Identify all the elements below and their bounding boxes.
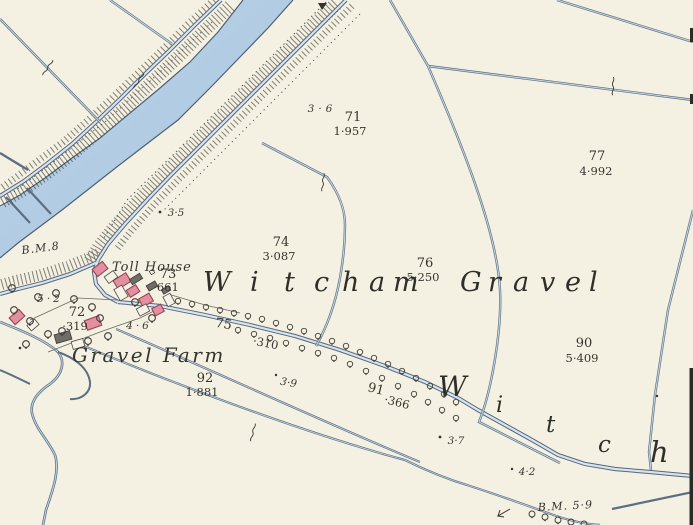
parcel-90-area: 5·409 [566,351,599,365]
svg-text:a: a [513,267,529,298]
svg-text:i: i [250,267,259,298]
svg-text:e: e [565,267,581,298]
spot-height-3-5: 3·5 [168,207,185,219]
spot-height-4-6: 4·6 [125,320,152,332]
parcel-72-area: ·319 [62,319,88,333]
svg-text:a: a [369,267,385,298]
place-name-toll-house: Toll House [112,260,192,275]
svg-text:h: h [650,435,669,469]
place-name-gravel-farm: Gravel Farm [72,343,226,367]
parcel-71-area: 1·957 [334,124,367,138]
svg-text:r: r [488,267,503,298]
svg-text:t: t [284,267,295,298]
spot-height-dot [19,347,22,350]
parcel-92-area: 1·881 [186,385,219,399]
map-canvas[interactable]: 71 1·957 77 4·992 74 3·087 73 ·661 76 5·… [0,0,693,525]
parcel-77-area: 4·992 [580,164,613,178]
parcel-71-number: 71 [345,110,362,125]
spot-height-dot [656,395,658,397]
parcel-74-area: 3·087 [263,249,296,263]
svg-text:h: h [342,267,359,298]
parcel-73-area: ·661 [153,280,179,294]
spot-height-4-2: 4·2 [518,466,536,478]
sheet-edge [690,368,693,525]
parcel-92-number: 92 [197,371,214,386]
svg-text:t: t [546,412,556,438]
spot-height-3-7: 3·7 [448,435,465,447]
paper-background [0,0,693,525]
parcel-76-number: 76 [417,256,434,271]
svg-text:G: G [460,267,482,298]
map-viewport[interactable]: 71 1·957 77 4·992 74 3·087 73 ·661 76 5·… [0,0,693,525]
svg-text:l: l [589,267,598,298]
parcel-72-number: 72 [69,305,86,320]
parcel-74-number: 74 [273,235,290,250]
svg-text:v: v [540,267,555,298]
svg-text:i: i [496,393,503,418]
place-name-gravel: G r a v e l [460,267,598,298]
parcel-90-number: 90 [576,336,593,351]
spot-height-dot [511,468,513,470]
spot-height-5-2: 5·2 [37,293,63,305]
svg-text:c: c [314,267,329,298]
svg-text:m: m [393,267,419,298]
spot-height-dot [275,374,277,376]
svg-text:W: W [203,267,233,298]
svg-text:W: W [438,370,469,403]
spot-height-3-6: 3·6 [308,103,337,115]
spot-height-dot [159,211,162,214]
parcel-75-number: 75 [214,316,233,333]
svg-text:c: c [598,432,611,458]
parcel-77-number: 77 [589,149,606,164]
spot-height-dot [439,436,442,439]
